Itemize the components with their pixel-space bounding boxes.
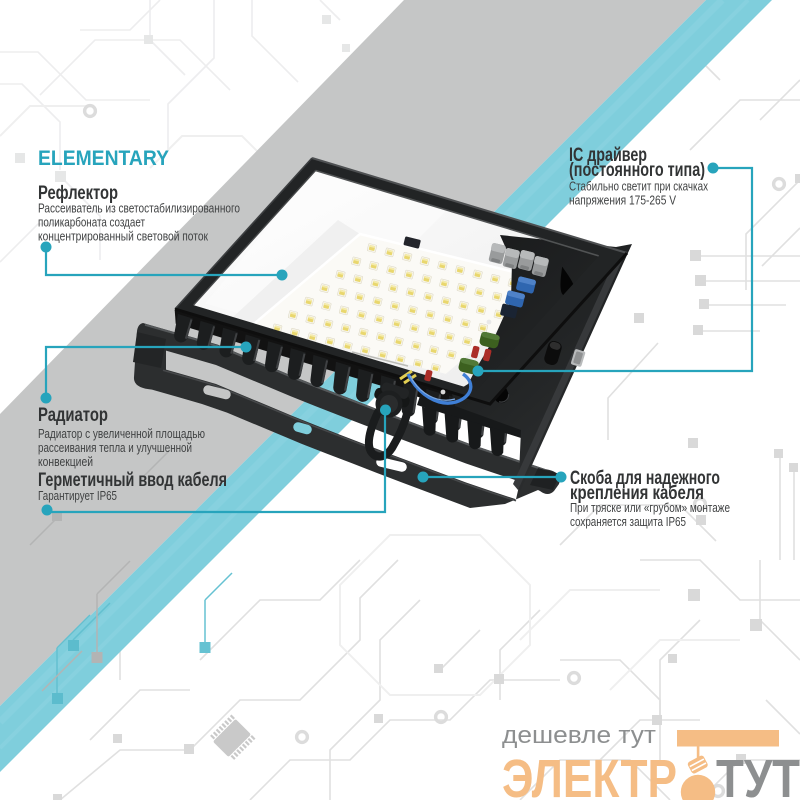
svg-text:При тряске или «грубом» монтаж: При тряске или «грубом» монтаже <box>570 500 730 515</box>
svg-text:сохраняется защита IP65: сохраняется защита IP65 <box>570 514 686 529</box>
svg-text:рассеивания тепла и улучшенной: рассеивания тепла и улучшенной <box>38 440 192 455</box>
svg-text:ELEMENTARY: ELEMENTARY <box>38 146 169 170</box>
svg-text:ТУТ: ТУТ <box>716 749 800 800</box>
svg-text:Стабильно светит при скачках: Стабильно светит при скачках <box>569 179 708 194</box>
svg-text:ЭЛЕКТР: ЭЛЕКТР <box>502 749 677 800</box>
svg-text:поликарбоната создает: поликарбоната создает <box>38 215 145 230</box>
svg-text:Радиатор: Радиатор <box>38 404 108 426</box>
svg-text:дешевле тут: дешевле тут <box>502 722 656 749</box>
svg-text:Радиатор с увеличенной площадь: Радиатор с увеличенной площадью <box>38 426 205 441</box>
svg-text:конвекцией: конвекцией <box>38 454 93 469</box>
svg-text:напряжения 175-265 V: напряжения 175-265 V <box>569 193 676 208</box>
svg-text:концентрированный световой пот: концентрированный световой поток <box>38 229 208 244</box>
svg-text:Рассеиватель из светостабилизи: Рассеиватель из светостабилизированного <box>38 201 240 216</box>
svg-text:Гарантирует IP65: Гарантирует IP65 <box>38 488 117 503</box>
